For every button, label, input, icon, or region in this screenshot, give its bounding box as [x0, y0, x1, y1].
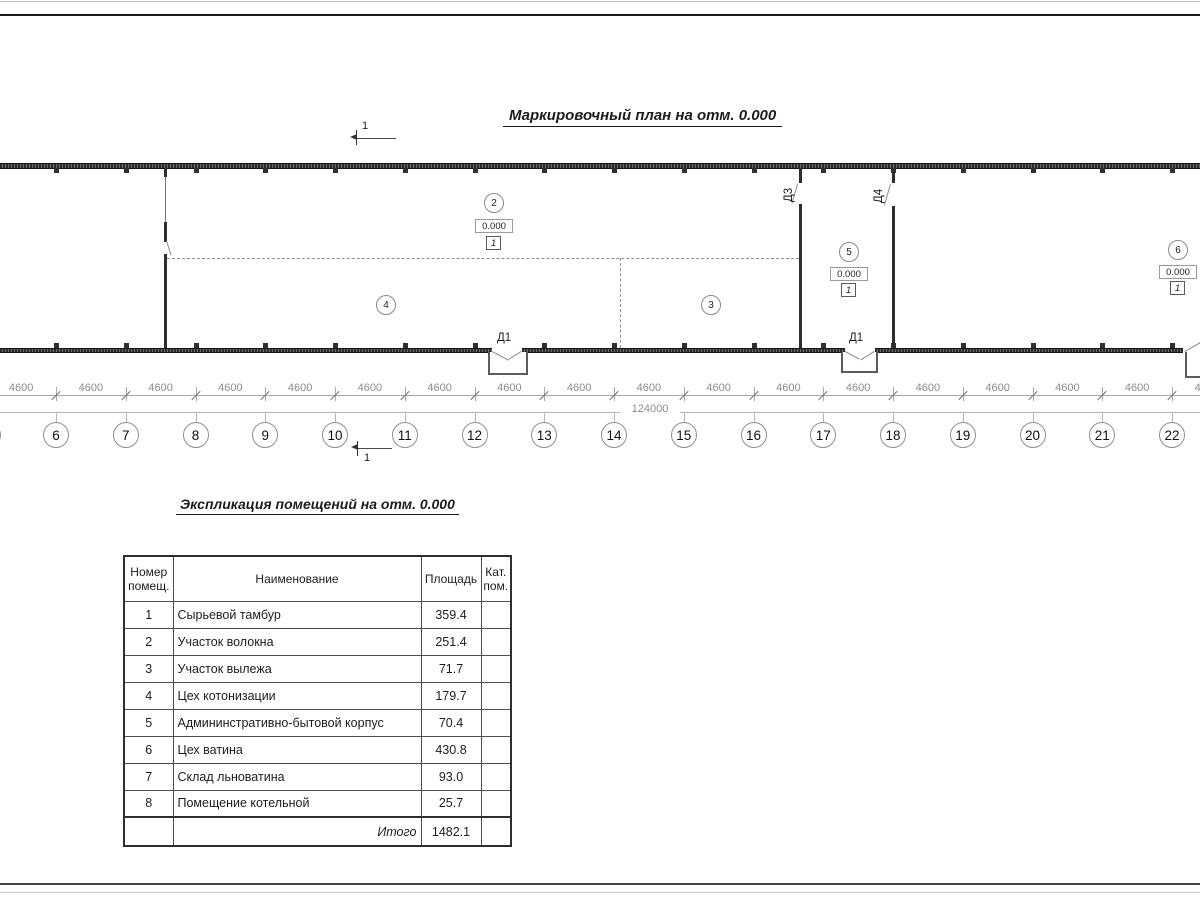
axis-bubble-10: 10: [322, 422, 348, 448]
column-tick-top: [194, 168, 199, 173]
schedule-header-row: Номер помещ. Наименование Площадь Кат. п…: [124, 556, 511, 601]
bay-dimension-label: 4600: [141, 382, 181, 394]
wall-bottom-segment-1: [0, 348, 492, 353]
room-category: [481, 763, 511, 790]
axis-bubble-11: 11: [392, 422, 418, 448]
bay-dimension-label: 4600: [838, 382, 878, 394]
column-tick-bottom: [473, 343, 478, 348]
column-tick-bottom: [752, 343, 757, 348]
room-name: Цех котонизации: [173, 682, 421, 709]
room-category: [481, 682, 511, 709]
column-tick-top: [682, 168, 687, 173]
room-area: 71.7: [421, 655, 481, 682]
bay-dimension-label: 4600: [1, 382, 41, 394]
column-tick-bottom: [194, 343, 199, 348]
room-area: 25.7: [421, 790, 481, 817]
plan-title-wrap: Маркировочный план на отм. 0.000: [503, 107, 782, 125]
bay-dimension-label: 4600: [210, 382, 250, 394]
sheet-edge-bottom: [0, 892, 1200, 893]
column-tick-top: [473, 168, 478, 173]
total-label: Итого: [173, 817, 421, 846]
room-number: 1: [124, 601, 173, 628]
elevation-mark-room5: 0.000: [830, 267, 868, 281]
total-empty-cell: [124, 817, 173, 846]
wall-b-main: [799, 204, 802, 348]
room-number: 5: [124, 709, 173, 736]
axis-bubble-7: 7: [113, 422, 139, 448]
total-dimension-label: 124000: [620, 403, 680, 415]
column-tick-top: [1170, 168, 1175, 173]
column-tick-bottom: [54, 343, 59, 348]
schedule-row-5: 5Админинстративно-бытовой корпус70.4: [124, 709, 511, 736]
column-tick-bottom: [891, 343, 896, 348]
bay-dimension-label: 4600: [1047, 382, 1087, 394]
schedule-row-1: 1Сырьевой тамбур359.4: [124, 601, 511, 628]
axis-bubble-19: 19: [950, 422, 976, 448]
room-number: 4: [124, 682, 173, 709]
wall-b-stub: [799, 168, 802, 183]
room-category: [481, 736, 511, 763]
room-area: 251.4: [421, 628, 481, 655]
room-number: 3: [124, 655, 173, 682]
axis-bubble-partial-left: [0, 422, 1, 448]
schedule-title: Экспликация помещений на отм. 0.000: [176, 496, 459, 515]
axis-bubble-21: 21: [1089, 422, 1115, 448]
axis-bubble-20: 20: [1020, 422, 1046, 448]
drawing-sheet: Маркировочный план на отм. 0.000 1 Д3 Д4…: [0, 0, 1200, 900]
column-tick-top: [1100, 168, 1105, 173]
floor-type-mark-room2: 1: [486, 236, 501, 250]
bay-dimension-label: 4600: [350, 382, 390, 394]
bay-dimension-label: 4600: [280, 382, 320, 394]
column-tick-bottom: [542, 343, 547, 348]
room-area: 70.4: [421, 709, 481, 736]
schedule-row-2: 2Участок волокна251.4: [124, 628, 511, 655]
axis-bubble-15: 15: [671, 422, 697, 448]
section-mark-bottom-line: [357, 448, 392, 449]
column-tick-top: [263, 168, 268, 173]
axis-bubble-22: 22: [1159, 422, 1185, 448]
column-tick-bottom: [1031, 343, 1036, 348]
sheet-frame-top: [0, 14, 1200, 16]
column-tick-top: [821, 168, 826, 173]
axis-bubble-18: 18: [880, 422, 906, 448]
header-room-category: Кат. пом.: [481, 556, 511, 601]
room-name: Склад льноватина: [173, 763, 421, 790]
bay-dimension-label: 4600: [420, 382, 460, 394]
room-name: Участок волокна: [173, 628, 421, 655]
room-number: 7: [124, 763, 173, 790]
column-tick-top: [752, 168, 757, 173]
bay-dimension-label: 4600: [1117, 382, 1157, 394]
vestibule-right-edge: [1185, 352, 1200, 378]
column-tick-bottom: [961, 343, 966, 348]
schedule-total-row: Итого 1482.1: [124, 817, 511, 846]
bay-dimension-label: 4600: [699, 382, 739, 394]
wall-c-main: [892, 206, 895, 348]
wall-bottom-segment-2: [522, 348, 845, 353]
column-tick-top: [961, 168, 966, 173]
header-room-area: Площадь: [421, 556, 481, 601]
room-name: Цех ватина: [173, 736, 421, 763]
axis-bubble-9: 9: [252, 422, 278, 448]
section-mark-bottom-number: 1: [364, 452, 370, 464]
column-tick-bottom: [1100, 343, 1105, 348]
bay-dimension-label: 4600: [489, 382, 529, 394]
room-category: [481, 655, 511, 682]
column-tick-top: [891, 168, 896, 173]
room-category: [481, 790, 511, 817]
floor-type-mark-room5: 1: [841, 283, 856, 297]
room-name: Админинстративно-бытовой корпус: [173, 709, 421, 736]
schedule-row-8: 8Помещение котельной25.7: [124, 790, 511, 817]
door-label-d1-left: Д1: [497, 332, 511, 344]
column-tick-top: [403, 168, 408, 173]
column-tick-bottom: [682, 343, 687, 348]
room-number: 2: [124, 628, 173, 655]
room-number: 6: [124, 736, 173, 763]
room-category: [481, 601, 511, 628]
column-tick-top: [54, 168, 59, 173]
wall-a-main: [164, 254, 167, 348]
bay-dimension-label: 4600: [1187, 382, 1200, 394]
bay-dimension-label: 4600: [559, 382, 599, 394]
partition-dashed-horizontal: [167, 258, 799, 259]
dimension-line-total: [0, 412, 1200, 413]
wall-a-leaf-segment: [164, 222, 167, 242]
column-tick-bottom: [612, 343, 617, 348]
wall-top: [0, 163, 1200, 169]
column-tick-top: [612, 168, 617, 173]
column-tick-top: [542, 168, 547, 173]
column-tick-bottom: [403, 343, 408, 348]
axis-bubble-8: 8: [183, 422, 209, 448]
section-mark-number: 1: [362, 120, 368, 132]
column-tick-top: [1031, 168, 1036, 173]
section-mark-line: [356, 138, 396, 139]
section-arrow-bottom-icon: [351, 444, 358, 450]
room-area: 179.7: [421, 682, 481, 709]
room-bubble-4: 4: [376, 295, 396, 315]
door-label-d1-right: Д1: [849, 332, 863, 344]
room-category: [481, 628, 511, 655]
bay-dimension-label: 4600: [71, 382, 111, 394]
bay-dimension-label: 4600: [629, 382, 669, 394]
room-bubble-6: 6: [1168, 240, 1188, 260]
vestibule-left: [488, 352, 528, 375]
header-room-number: Номер помещ.: [124, 556, 173, 601]
axis-bubble-6: 6: [43, 422, 69, 448]
sheet-edge-top: [0, 1, 1200, 2]
column-tick-bottom: [333, 343, 338, 348]
room-schedule-table: Номер помещ. Наименование Площадь Кат. п…: [123, 555, 512, 847]
room-name: Сырьевой тамбур: [173, 601, 421, 628]
header-room-name: Наименование: [173, 556, 421, 601]
elevation-mark-room6: 0.000: [1159, 265, 1197, 279]
room-name: Помещение котельной: [173, 790, 421, 817]
room-category: [481, 709, 511, 736]
bay-dimension-label: 4600: [768, 382, 808, 394]
room-name: Участок вылежа: [173, 655, 421, 682]
elevation-mark-room2: 0.000: [475, 219, 513, 233]
axis-bubble-17: 17: [810, 422, 836, 448]
axis-bubble-12: 12: [462, 422, 488, 448]
column-tick-top: [124, 168, 129, 173]
vestibule-middle: [841, 352, 878, 373]
axis-bubble-16: 16: [741, 422, 767, 448]
sheet-frame-bottom: [0, 883, 1200, 885]
bay-dimension-label: 4600: [908, 382, 948, 394]
room-bubble-5: 5: [839, 242, 859, 262]
bay-dimension-label: 4600: [978, 382, 1018, 394]
column-tick-bottom: [821, 343, 826, 348]
door-leaf-right-edge: [1185, 342, 1200, 352]
wall-a-opening-line: [165, 177, 166, 222]
room-bubble-3: 3: [701, 295, 721, 315]
door-label-d4: Д4: [873, 184, 885, 208]
room-area: 93.0: [421, 763, 481, 790]
floor-type-mark-room6: 1: [1170, 281, 1185, 295]
wall-bottom-segment-3: [875, 348, 1183, 353]
room-area: 430.8: [421, 736, 481, 763]
schedule-title-wrap: Экспликация помещений на отм. 0.000: [176, 496, 459, 514]
column-tick-bottom: [263, 343, 268, 348]
total-area-value: 1482.1: [421, 817, 481, 846]
wall-a-stub: [164, 168, 167, 177]
column-tick-top: [333, 168, 338, 173]
axis-bubble-14: 14: [601, 422, 627, 448]
plan-title: Маркировочный план на отм. 0.000: [503, 107, 782, 127]
schedule-row-7: 7Склад льноватина93.0: [124, 763, 511, 790]
dimension-line-bays: [0, 395, 1200, 396]
schedule-row-3: 3Участок вылежа71.7: [124, 655, 511, 682]
room-area: 359.4: [421, 601, 481, 628]
column-tick-bottom: [124, 343, 129, 348]
schedule-row-4: 4Цех котонизации179.7: [124, 682, 511, 709]
door-label-d3: Д3: [783, 183, 795, 207]
schedule-row-6: 6Цех ватина430.8: [124, 736, 511, 763]
total-category-cell: [481, 817, 511, 846]
room-bubble-2: 2: [484, 193, 504, 213]
axis-bubble-13: 13: [531, 422, 557, 448]
section-arrow-icon: [350, 134, 357, 140]
column-tick-bottom: [1170, 343, 1175, 348]
partition-dashed-vertical: [620, 258, 621, 348]
room-number: 8: [124, 790, 173, 817]
